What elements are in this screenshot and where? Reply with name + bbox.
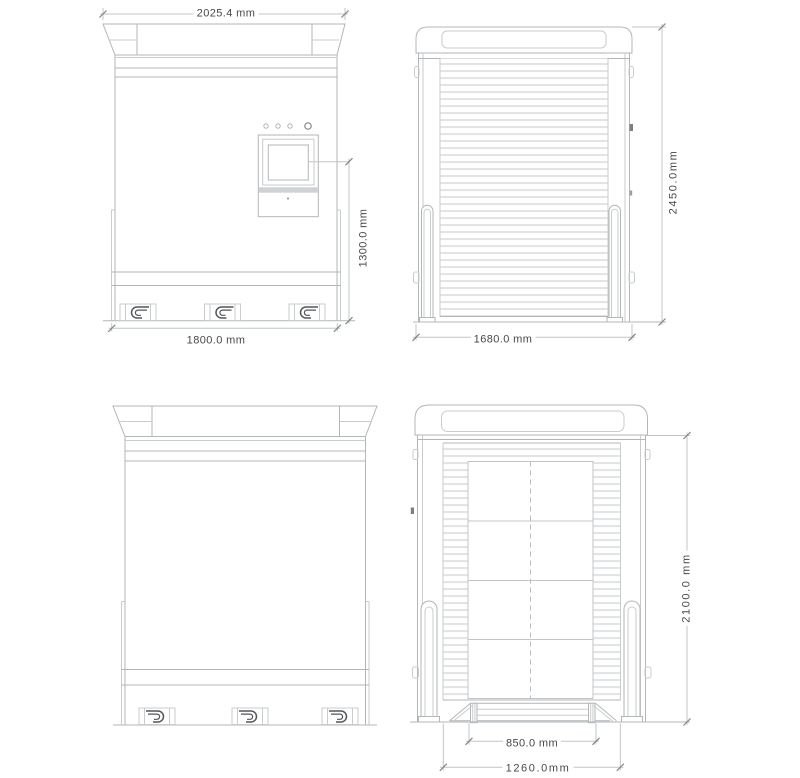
indicator-lights bbox=[264, 123, 311, 129]
dim-front-top-width: 2025.4 mm bbox=[194, 8, 259, 21]
dim-side-height: 2450.0mm bbox=[668, 147, 681, 218]
rear-body bbox=[113, 437, 377, 726]
side-roof bbox=[416, 27, 632, 53]
dim-front-panel-height: 1300.0 mm bbox=[358, 206, 371, 271]
front-hooks bbox=[120, 304, 325, 321]
front-roof bbox=[103, 24, 345, 55]
dim-open-pallet-width: 850.0 mm bbox=[503, 738, 561, 751]
rear-view bbox=[113, 406, 377, 725]
open-roof bbox=[415, 405, 648, 435]
roller-shutter-closed bbox=[440, 59, 608, 317]
front-dimension-lines bbox=[100, 8, 353, 332]
cabinet-orthographic-views bbox=[0, 0, 800, 778]
dim-open-height: 2100.0 mm bbox=[681, 550, 694, 625]
dim-front-bottom-width: 1800.0 mm bbox=[184, 335, 249, 348]
front-view bbox=[100, 8, 356, 332]
dim-open-opening-width: 1260.0mm bbox=[503, 762, 574, 775]
side-view-open bbox=[410, 405, 691, 771]
battery-module-rack bbox=[468, 462, 593, 699]
side-view-closed bbox=[413, 24, 667, 341]
dim-side-bottom-width: 1680.0 mm bbox=[471, 334, 536, 347]
control-panel bbox=[258, 135, 318, 217]
rear-hooks bbox=[139, 708, 358, 725]
technical-drawing-sheet: 2025.4 mm 1300.0 mm 1800.0 mm 1680.0 mm … bbox=[0, 0, 800, 778]
pallet-platform bbox=[450, 703, 617, 722]
rear-roof bbox=[113, 406, 377, 437]
